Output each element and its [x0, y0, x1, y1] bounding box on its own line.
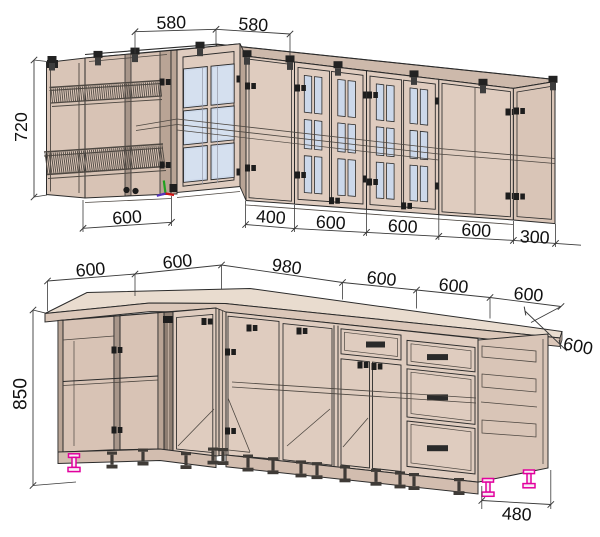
svg-text:720: 720 [11, 112, 31, 142]
svg-text:850: 850 [11, 378, 32, 410]
svg-text:600: 600 [162, 250, 194, 273]
svg-text:980: 980 [271, 255, 303, 279]
svg-text:400: 400 [255, 206, 286, 228]
svg-text:600: 600 [112, 206, 143, 228]
svg-text:580: 580 [238, 14, 269, 36]
svg-text:600: 600 [366, 267, 398, 290]
svg-text:580: 580 [156, 12, 186, 33]
svg-text:600: 600 [438, 274, 470, 297]
svg-text:600: 600 [513, 283, 544, 306]
svg-text:600: 600 [387, 216, 418, 238]
svg-text:300: 300 [519, 226, 550, 248]
svg-text:600: 600 [315, 212, 346, 234]
svg-text:480: 480 [501, 503, 532, 525]
svg-text:600: 600 [75, 258, 106, 281]
svg-text:600: 600 [461, 220, 492, 242]
